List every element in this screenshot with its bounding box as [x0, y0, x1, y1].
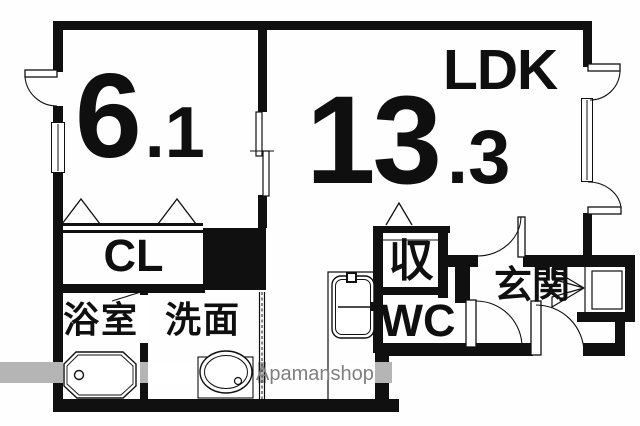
- western-area-decimal: .1: [145, 97, 205, 169]
- wall-divider-mid: [258, 195, 267, 228]
- room-label-storage: 収: [383, 238, 439, 283]
- wall-closet-bottom: [53, 284, 205, 293]
- entrance-door-icon: [531, 301, 584, 355]
- ldk-area-decimal: .3: [447, 120, 510, 196]
- room-label-closet: CL: [63, 233, 204, 278]
- room-label-bathroom: 浴室: [61, 302, 141, 338]
- room-label-washroom: 洗面: [146, 302, 260, 338]
- floor-plan: 6 .1 LDK 13 .3 CL 浴室 洗面 収 WC 玄関 Apamansh…: [0, 0, 640, 426]
- swing-door-icon: [588, 182, 621, 214]
- room-label-entrance: 玄関: [483, 267, 581, 305]
- wall-right-mid: [583, 213, 592, 255]
- swing-door-icon: [588, 64, 620, 100]
- western-area-main: 6: [75, 56, 139, 176]
- room-label-western: 6 .1: [75, 56, 205, 176]
- room-label-toilet: WC: [378, 298, 458, 343]
- wall-block-center: [203, 228, 266, 290]
- washroom-floor-patch: [148, 362, 258, 383]
- swing-door-icon: [478, 217, 525, 257]
- folding-door-icon: [62, 199, 100, 224]
- wall-divider-upper: [258, 21, 267, 112]
- ldk-area-main: 13: [306, 78, 439, 203]
- window-icon: [51, 122, 65, 173]
- bathroom-floor-patch: [63, 362, 140, 383]
- wall-shoebox-bottom: [577, 312, 635, 322]
- wall-bottom: [53, 399, 399, 412]
- sliding-door-icon: [250, 112, 274, 196]
- folding-door-icon: [158, 199, 196, 224]
- wall-right-upper: [583, 21, 592, 67]
- closet-track-line-top: [53, 223, 203, 226]
- wall-top: [53, 21, 592, 30]
- window-icon: [581, 98, 593, 182]
- wall-left-upper: [53, 21, 63, 72]
- swing-door-icon: [25, 70, 57, 106]
- watermark-text: Apamanshop: [256, 363, 374, 386]
- room-label-ldk-area: 13 .3: [306, 78, 510, 203]
- wall-storage-wc-divider: [373, 287, 448, 295]
- wall-entrance-right-lower: [615, 322, 625, 356]
- swing-door-icon: [466, 300, 522, 347]
